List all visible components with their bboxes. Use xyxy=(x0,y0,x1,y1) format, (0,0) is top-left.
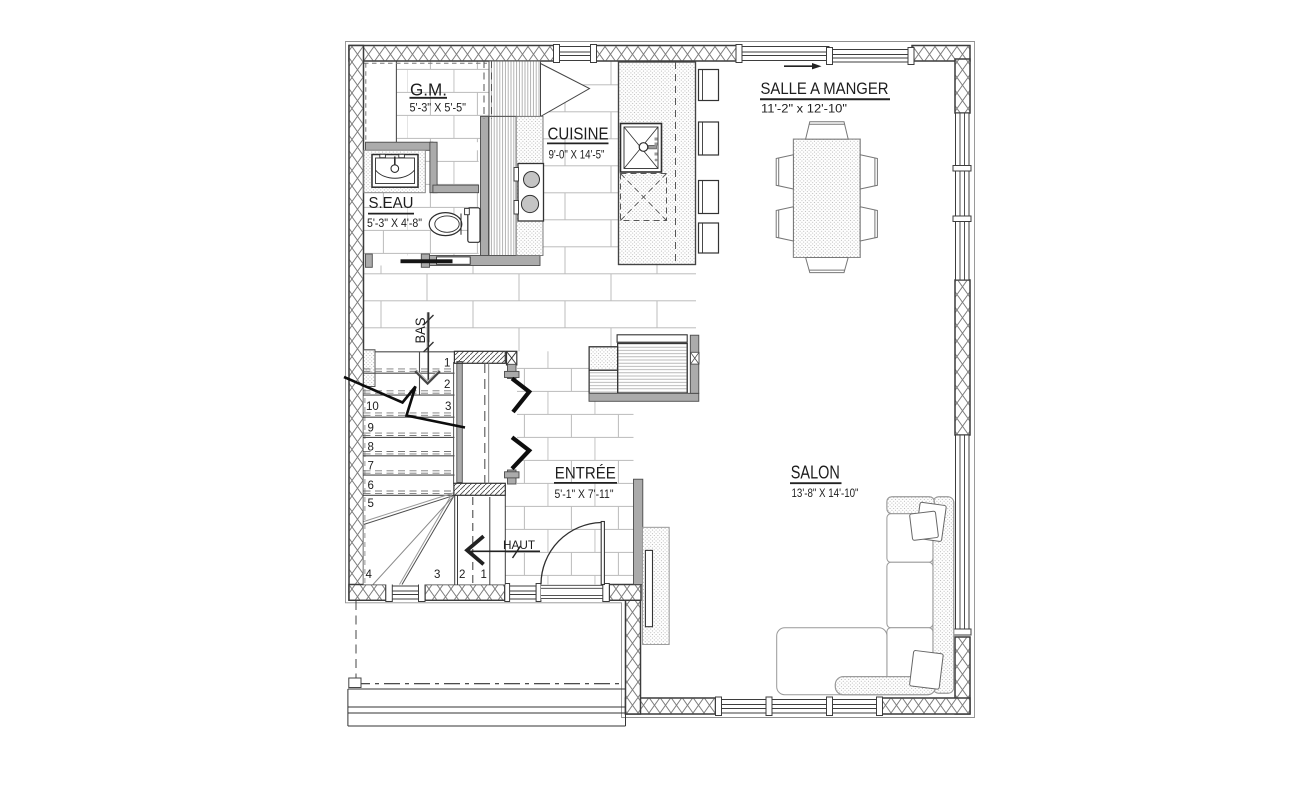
svg-text:1: 1 xyxy=(481,569,487,581)
svg-text:9'-0" X 14'-5": 9'-0" X 14'-5" xyxy=(549,148,605,162)
svg-text:S.EAU: S.EAU xyxy=(369,195,414,212)
svg-text:2: 2 xyxy=(444,379,450,391)
svg-text:CUISINE: CUISINE xyxy=(548,124,609,144)
svg-text:8: 8 xyxy=(368,442,374,454)
svg-text:5'-3" X 5'-5": 5'-3" X 5'-5" xyxy=(410,101,467,115)
svg-text:SALON: SALON xyxy=(791,463,840,483)
svg-text:9: 9 xyxy=(368,422,374,434)
svg-text:ENTRÉE: ENTRÉE xyxy=(555,463,616,482)
svg-text:BAS: BAS xyxy=(413,318,428,344)
svg-text:1: 1 xyxy=(444,358,450,370)
svg-text:6: 6 xyxy=(368,480,374,492)
svg-text:13'-8" X 14'-10": 13'-8" X 14'-10" xyxy=(792,486,859,500)
svg-text:3: 3 xyxy=(434,569,440,581)
svg-text:4: 4 xyxy=(366,569,373,581)
svg-text:3: 3 xyxy=(445,401,451,413)
svg-text:G.M.: G.M. xyxy=(410,79,447,99)
svg-text:10: 10 xyxy=(366,401,379,413)
svg-text:5'-3" X 4'-8": 5'-3" X 4'-8" xyxy=(367,216,422,230)
svg-text:11'-2" x 12'-10": 11'-2" x 12'-10" xyxy=(761,102,847,116)
svg-text:HAUT: HAUT xyxy=(503,538,536,552)
svg-text:SALLE A MANGER: SALLE A MANGER xyxy=(761,79,889,98)
svg-text:7: 7 xyxy=(368,461,374,473)
svg-text:2: 2 xyxy=(459,569,465,581)
svg-text:5'-1" X 7'-11": 5'-1" X 7'-11" xyxy=(555,487,614,501)
svg-text:5: 5 xyxy=(368,498,374,510)
